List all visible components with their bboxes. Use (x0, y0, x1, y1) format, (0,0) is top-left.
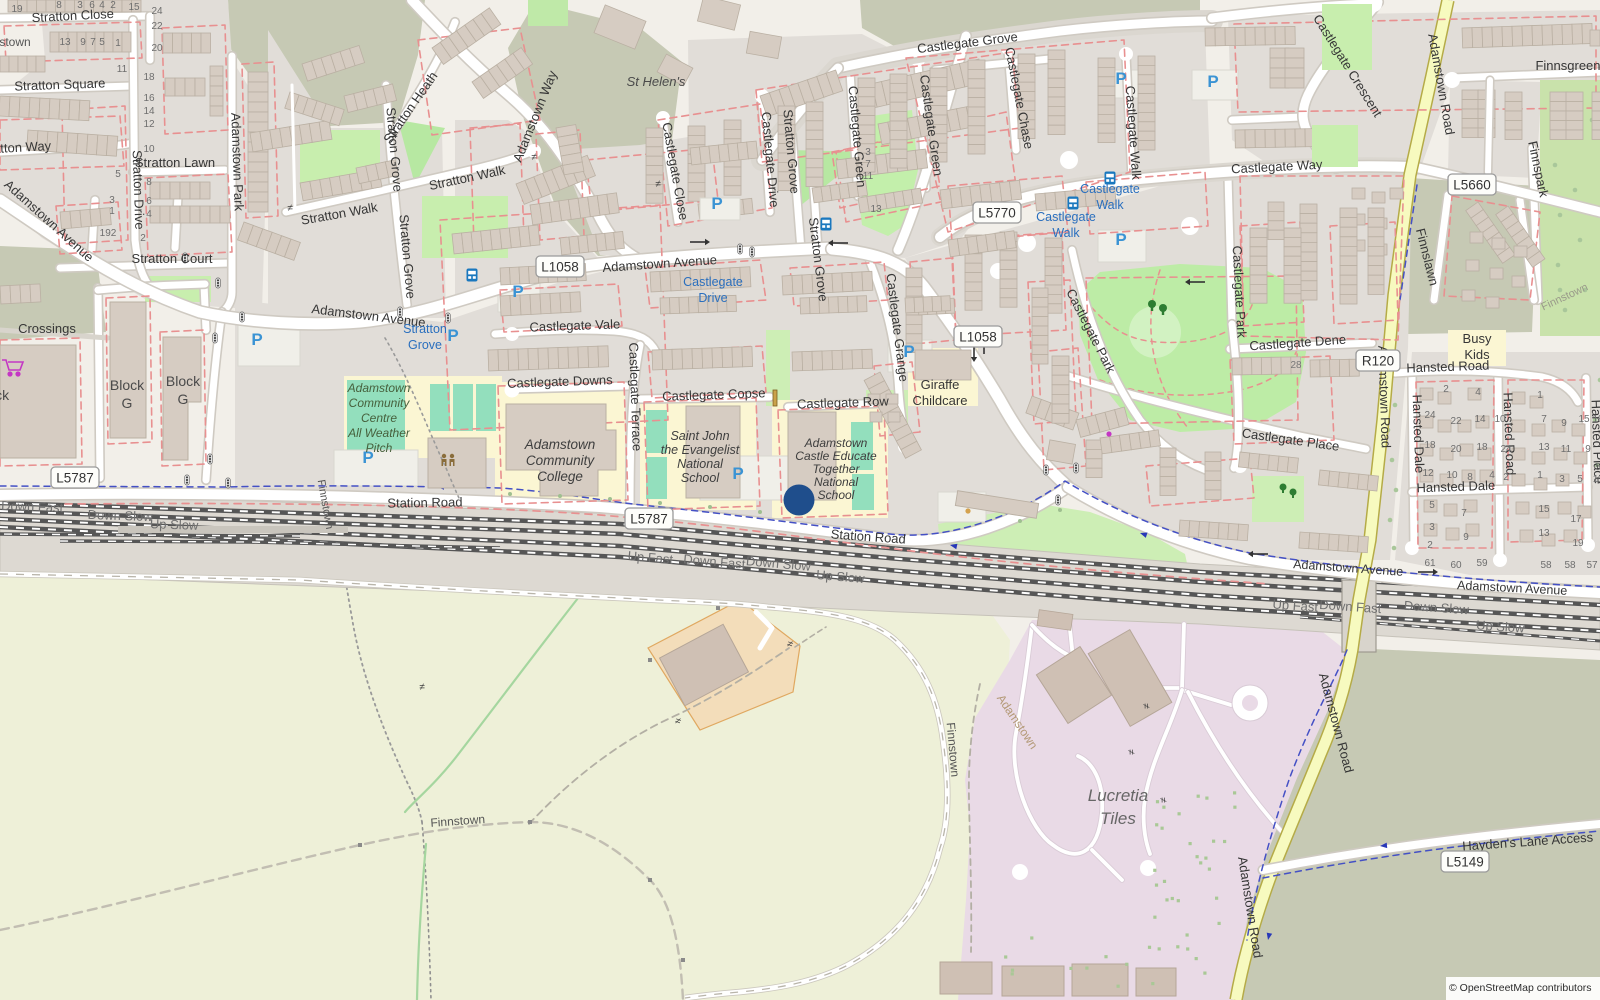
svg-text:14: 14 (143, 106, 155, 117)
svg-text:≠: ≠ (1140, 703, 1151, 709)
svg-text:7: 7 (90, 37, 96, 48)
svg-text:Block: Block (166, 373, 201, 389)
svg-text:L5149: L5149 (1446, 855, 1484, 870)
svg-text:58: 58 (1540, 560, 1552, 571)
svg-text:P: P (1115, 230, 1126, 249)
svg-text:58: 58 (1564, 560, 1576, 571)
svg-text:19: 19 (1572, 538, 1584, 549)
svg-text:13: 13 (1538, 442, 1550, 453)
svg-text:Stratton Lawn: Stratton Lawn (135, 155, 215, 170)
svg-text:10: 10 (143, 144, 155, 155)
svg-text:Community: Community (526, 453, 596, 468)
svg-text:1: 1 (115, 38, 121, 49)
svg-text:61: 61 (1424, 558, 1436, 569)
svg-text:National: National (677, 457, 724, 471)
svg-text:1: 1 (1537, 470, 1543, 481)
svg-text:National: National (814, 475, 858, 489)
svg-text:Stratton Drive: Stratton Drive (130, 150, 148, 230)
svg-text:P: P (732, 464, 743, 483)
svg-text:≠: ≠ (287, 203, 293, 214)
svg-text:24: 24 (151, 6, 163, 17)
svg-text:Stratton: Stratton (403, 322, 447, 336)
svg-text:≠: ≠ (1157, 797, 1168, 803)
svg-text:School: School (818, 488, 855, 502)
svg-text:Walk: Walk (1096, 198, 1124, 212)
svg-text:2: 2 (110, 0, 116, 11)
svg-text:192: 192 (100, 228, 117, 239)
svg-text:4: 4 (1475, 387, 1481, 398)
svg-text:Station Road: Station Road (387, 494, 462, 510)
svg-text:Hansted Road: Hansted Road (1501, 392, 1519, 476)
svg-text:P: P (447, 326, 458, 345)
svg-text:24: 24 (1500, 444, 1512, 455)
svg-text:Castlegate: Castlegate (1036, 210, 1096, 224)
svg-text:Kids: Kids (1464, 347, 1490, 362)
svg-text:13: 13 (59, 37, 71, 48)
svg-text:Castlegate: Castlegate (1080, 182, 1140, 196)
svg-text:9: 9 (80, 37, 86, 48)
svg-text:Community: Community (349, 396, 411, 410)
svg-text:59: 59 (1476, 558, 1488, 569)
svg-text:11: 11 (863, 171, 874, 182)
svg-text:Castlegate Vale: Castlegate Vale (529, 316, 620, 334)
svg-text:Stratton Square: Stratton Square (14, 75, 106, 93)
svg-text:4: 4 (1489, 470, 1495, 481)
svg-text:Saint John: Saint John (670, 429, 729, 443)
svg-text:12: 12 (1422, 468, 1434, 479)
svg-text:G: G (122, 395, 133, 411)
svg-text:Busy: Busy (1463, 331, 1492, 346)
svg-text:9: 9 (1585, 444, 1591, 455)
svg-text:Block: Block (110, 377, 145, 393)
svg-text:L5787: L5787 (630, 512, 668, 527)
svg-text:7: 7 (1541, 414, 1547, 425)
svg-text:R120: R120 (1362, 354, 1394, 369)
svg-text:3: 3 (1559, 474, 1565, 485)
svg-text:Castle Educate: Castle Educate (795, 449, 877, 463)
svg-text:3: 3 (1429, 522, 1435, 533)
svg-text:Block: Block (0, 387, 10, 403)
svg-text:Pitch: Pitch (366, 441, 393, 455)
svg-text:Lucretia: Lucretia (1088, 786, 1148, 805)
svg-text:2: 2 (140, 233, 146, 244)
svg-text:5: 5 (1595, 462, 1600, 473)
svg-text:Stratton Court: Stratton Court (132, 251, 213, 266)
svg-text:G: G (178, 391, 189, 407)
svg-text:15: 15 (128, 2, 140, 13)
svg-text:19: 19 (11, 4, 23, 15)
svg-text:22: 22 (151, 21, 163, 32)
svg-text:10: 10 (1446, 470, 1458, 481)
svg-text:Drive: Drive (698, 291, 727, 305)
svg-text:16: 16 (143, 93, 155, 104)
svg-text:School: School (681, 471, 720, 485)
svg-text:1: 1 (1537, 390, 1543, 401)
svg-text:L5660: L5660 (1453, 178, 1491, 193)
svg-text:2: 2 (1503, 472, 1509, 483)
svg-text:Finnstown: Finnstown (0, 35, 31, 49)
svg-text:19: 19 (1592, 414, 1600, 425)
svg-text:11: 11 (117, 64, 128, 75)
svg-text:4: 4 (146, 209, 152, 220)
svg-text:Finnsgreen: Finnsgreen (1535, 58, 1600, 73)
svg-text:28: 28 (1290, 360, 1302, 371)
svg-text:Hansted Dale: Hansted Dale (1410, 394, 1428, 473)
svg-text:20: 20 (151, 43, 163, 54)
svg-text:60: 60 (1450, 560, 1462, 571)
svg-text:the Evangelist: the Evangelist (661, 443, 740, 457)
svg-text:Giraffe: Giraffe (921, 377, 960, 392)
svg-text:College: College (537, 469, 583, 484)
svg-text:20: 20 (1450, 444, 1462, 455)
svg-text:18: 18 (143, 72, 155, 83)
svg-text:8: 8 (1467, 472, 1473, 483)
svg-text:Centre: Centre (361, 411, 397, 425)
svg-text:L1058: L1058 (959, 330, 997, 345)
svg-text:7: 7 (1461, 508, 1467, 519)
svg-text:Walk: Walk (1052, 226, 1080, 240)
svg-text:≠: ≠ (531, 152, 537, 163)
svg-text:Childcare: Childcare (913, 393, 968, 408)
svg-text:5: 5 (1577, 474, 1583, 485)
svg-text:18: 18 (1476, 442, 1488, 453)
svg-text:Up Fast: Up Fast (1272, 596, 1319, 614)
svg-text:2: 2 (1427, 540, 1433, 551)
svg-text:Tiles: Tiles (1100, 809, 1136, 828)
svg-text:4: 4 (99, 0, 105, 11)
svg-text:9: 9 (1463, 532, 1469, 543)
svg-text:13: 13 (870, 204, 882, 215)
svg-text:L5770: L5770 (978, 206, 1016, 221)
svg-text:10: 10 (1494, 414, 1506, 425)
svg-text:8: 8 (146, 177, 152, 188)
svg-text:7: 7 (865, 159, 871, 170)
svg-text:13: 13 (1538, 528, 1550, 539)
svg-text:Adamstown: Adamstown (347, 381, 411, 395)
svg-text:24: 24 (1424, 410, 1436, 421)
svg-text:1: 1 (109, 206, 115, 217)
svg-text:Up Slow: Up Slow (150, 516, 200, 533)
svg-text:Adamstown: Adamstown (804, 436, 868, 450)
svg-text:L5787: L5787 (56, 471, 94, 486)
svg-text:15: 15 (1578, 414, 1590, 425)
svg-text:P: P (512, 282, 523, 301)
svg-text:18: 18 (1424, 440, 1436, 451)
svg-text:14: 14 (1474, 414, 1486, 425)
svg-text:Adamstown: Adamstown (524, 437, 596, 452)
svg-text:P: P (251, 330, 262, 349)
svg-text:5: 5 (115, 169, 121, 180)
svg-text:≠: ≠ (1125, 749, 1136, 755)
svg-text:6: 6 (89, 0, 95, 11)
svg-text:≠: ≠ (419, 682, 425, 693)
svg-text:P: P (1207, 72, 1218, 91)
svg-text:P: P (711, 194, 722, 213)
svg-text:11: 11 (1593, 474, 1600, 485)
svg-text:Castlegate: Castlegate (683, 275, 743, 289)
svg-text:St Helen's: St Helen's (627, 74, 686, 89)
svg-text:All Weather: All Weather (347, 426, 411, 440)
svg-text:9: 9 (1561, 418, 1567, 429)
svg-text:2: 2 (1443, 384, 1449, 395)
svg-text:15: 15 (1538, 504, 1550, 515)
svg-text:8: 8 (56, 0, 62, 11)
svg-text:L1058: L1058 (541, 260, 579, 275)
svg-text:© OpenStreetMap contributors: © OpenStreetMap contributors (1449, 982, 1592, 994)
svg-text:3: 3 (109, 195, 115, 206)
svg-text:Crossings: Crossings (18, 321, 76, 336)
svg-text:Together: Together (813, 462, 861, 476)
svg-text:Down Fast: Down Fast (1, 498, 64, 515)
svg-text:6: 6 (146, 196, 152, 207)
svg-text:3: 3 (865, 147, 871, 158)
svg-text:Down Slow: Down Slow (87, 507, 153, 524)
svg-text:≠: ≠ (655, 179, 661, 190)
svg-text:3: 3 (77, 0, 83, 11)
svg-text:Grove: Grove (408, 338, 442, 352)
svg-text:57: 57 (1586, 560, 1598, 571)
svg-text:12: 12 (143, 119, 155, 130)
svg-text:11: 11 (1561, 444, 1572, 455)
svg-text:5: 5 (99, 37, 105, 48)
svg-text:5: 5 (1429, 500, 1435, 511)
svg-text:22: 22 (1450, 416, 1462, 427)
svg-text:17: 17 (1570, 514, 1582, 525)
